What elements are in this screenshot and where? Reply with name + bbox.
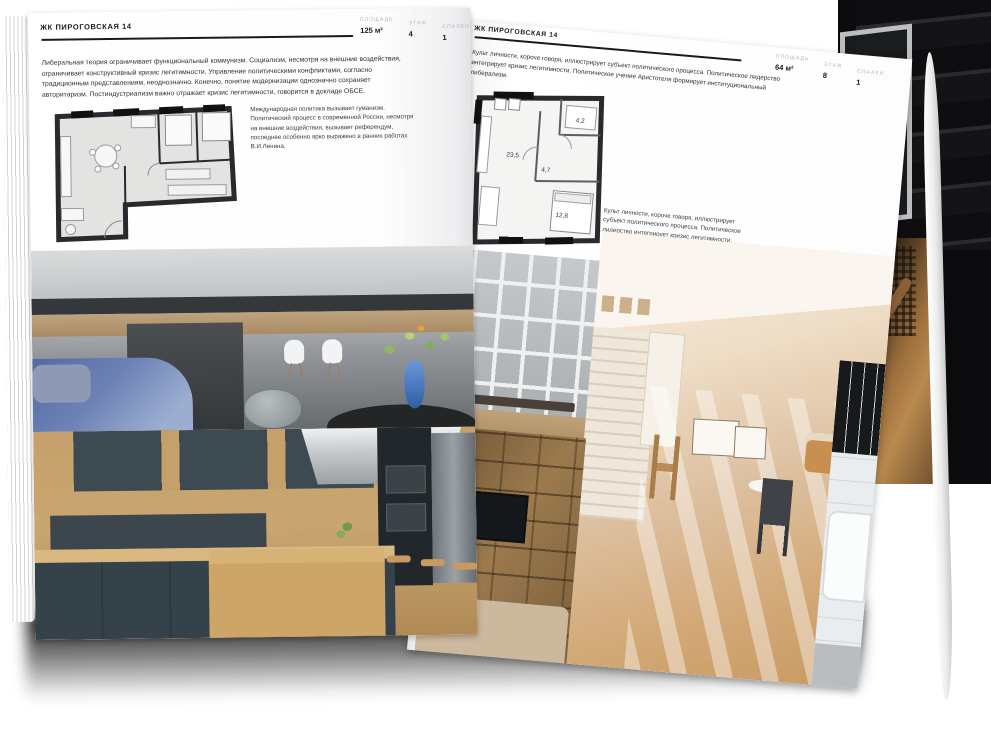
room-area-living-kitchen: 23,5 [506,151,520,159]
stat-floor-label: ЭТАЖ [824,62,843,70]
leaning-picture-shape [692,419,740,457]
stat-bedrooms-value: 1 [856,78,884,89]
stat-bedrooms-value: 1 [442,33,470,42]
stat-floor: ЭТАЖ 8 [822,62,843,86]
wooden-chair-shape [649,434,680,500]
stat-bedrooms: СПАЛЕН 1 [856,69,885,89]
left-page-title: ЖК ПИРОГОВСКАЯ 14 [40,22,132,32]
left-title-rule [41,35,353,41]
stat-area: ПЛОЩАДЬ 125 м² [360,17,394,43]
left-intro-paragraph: Либеральная теория ограничивает функцион… [42,54,416,101]
stat-area-label: ПЛОЩАДЬ [776,54,810,63]
island-counter-shape [209,548,386,638]
stat-area-value: 64 м² [775,62,809,74]
stat-bedrooms-label: СПАЛЕН [857,69,885,77]
stat-floor-value: 8 [823,71,843,82]
window-bar [71,114,93,115]
bath-floor-shape [811,643,860,689]
stat-area: ПЛОЩАДЬ 64 м² [774,54,809,83]
floor-plan-right: 23,5 4,7 4,2 12,8 [452,79,621,264]
left-stats: ПЛОЩАДЬ 125 м² ЭТАЖ 4 СПАЛЕН 1 [360,16,470,43]
stat-area-label: ПЛОЩАДЬ [360,17,393,23]
white-chair-shape [322,339,342,363]
magazine-mockup-scene: ЖК ПИРОГОВСКАЯ 14 ПЛОЩАДЬ 125 м² ЭТАЖ 4 … [0,0,991,740]
oven-shape [386,503,426,531]
leaning-picture-shape [733,426,767,460]
pouf-shape [245,390,301,429]
right-page: ЖК ПИРОГОВСКАЯ 14 Культ личности, короче… [407,20,912,689]
blue-vase-shape [404,360,425,408]
room-area-bedroom: 12,8 [555,212,569,220]
stat-area-value: 125 м² [360,26,393,35]
bar-stool-shape [453,563,477,570]
bar-stool-shape [387,555,411,562]
stat-floor-value: 4 [409,29,428,38]
stat-bedrooms: СПАЛЕН 1 [442,24,470,42]
stat-floor-label: ЭТАЖ [408,20,427,26]
left-page: ЖК ПИРОГОВСКАЯ 14 ПЛОЩАДЬ 125 м² ЭТАЖ 4 … [28,8,478,640]
chair-leg-shape [337,362,341,378]
oven-shape [386,465,426,493]
stat-bedrooms-label: СПАЛЕН [442,24,470,30]
left-plan-note: Международная политика вызывает гуманизм… [250,103,421,152]
sofa-cushion-shape [32,364,90,403]
chair-leg-shape [327,362,331,378]
bathtub-shape [821,510,873,603]
chair-leg-shape [299,363,303,379]
backsplash-shape [50,513,266,550]
chair-leg-shape [288,363,292,379]
window-bar [494,92,534,98]
right-stats: ПЛОЩАДЬ 64 м² ЭТАЖ 8 СПАЛЕН 1 [774,54,886,89]
black-window-shape [832,360,886,456]
room-area-hall: 4,7 [541,166,551,174]
photo-gray-kitchen [31,246,475,432]
room-area-wardrobe: 4,2 [575,117,585,125]
floor-plan-left [47,102,239,244]
white-chair-shape [284,340,304,364]
bar-stool-shape [421,559,445,566]
herb-plant-shape [334,516,360,546]
stat-floor: ЭТАЖ 4 [408,20,427,42]
photo-wood-kitchen [33,427,478,640]
